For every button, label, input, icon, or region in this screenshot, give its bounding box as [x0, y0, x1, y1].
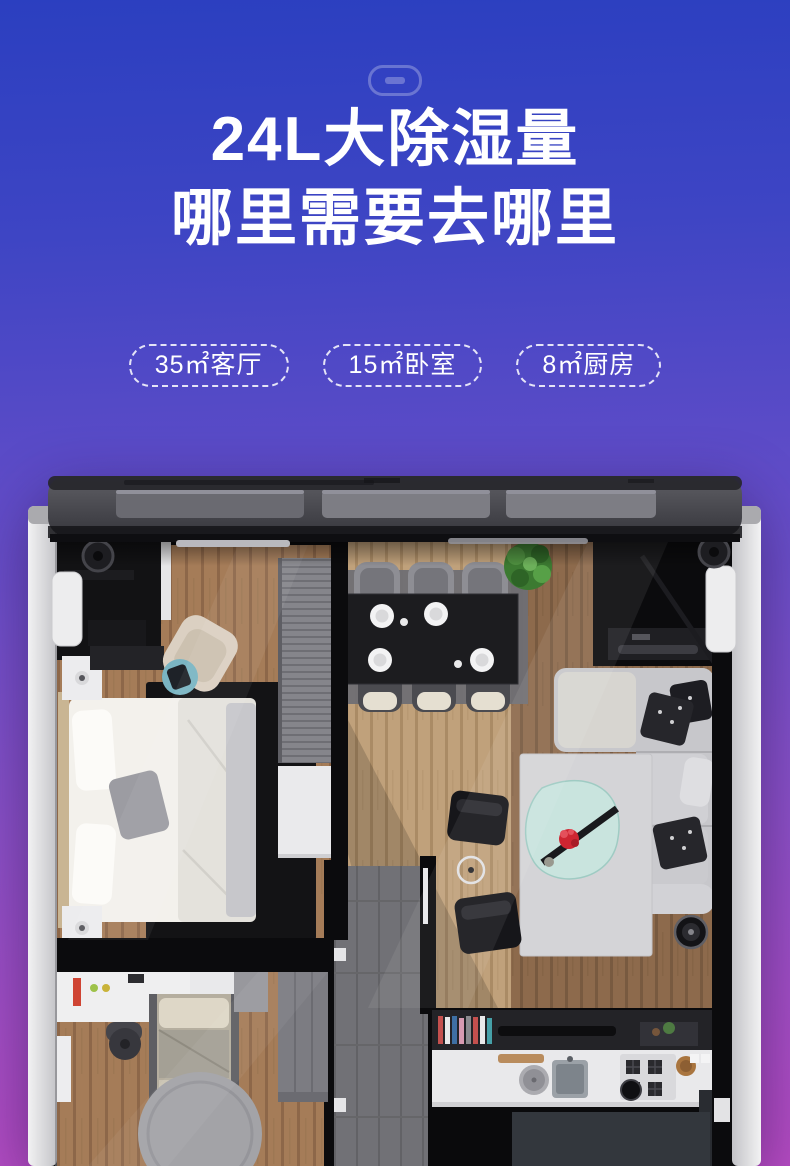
- dehumidifier-vent-bar: [385, 77, 405, 84]
- cutting-board: [498, 1054, 544, 1063]
- title-line-1: 24L大除湿量: [211, 105, 580, 174]
- kitchen-mat: [512, 1112, 710, 1166]
- left-handle-pocket: [52, 572, 82, 646]
- room-size-badges: 35㎡客厅 15㎡卧室 8㎡厨房: [0, 344, 790, 387]
- floorplan-image: [28, 470, 761, 1166]
- gas-stove: [620, 1054, 676, 1100]
- dehumidifier-outline-icon: [368, 65, 422, 96]
- ceiling-light: [448, 538, 588, 544]
- ceiling-light: [176, 540, 290, 547]
- red-flowers: [559, 829, 579, 849]
- page-title: 24L大除湿量哪里需要去哪里: [0, 100, 790, 259]
- title-line-2: 哪里需要去哪里: [171, 184, 619, 253]
- badge-kitchen: 8㎡厨房: [516, 344, 661, 387]
- pot: [621, 1080, 641, 1100]
- badge-living-room: 35㎡客厅: [129, 344, 289, 387]
- badge-bedroom: 15㎡卧室: [323, 344, 483, 387]
- promo-page: { "theme": { "background_top": "#2b3fc0"…: [0, 0, 790, 1166]
- white-cabinet: [278, 766, 331, 858]
- dresser: [90, 646, 164, 670]
- right-handle-pocket: [706, 566, 736, 652]
